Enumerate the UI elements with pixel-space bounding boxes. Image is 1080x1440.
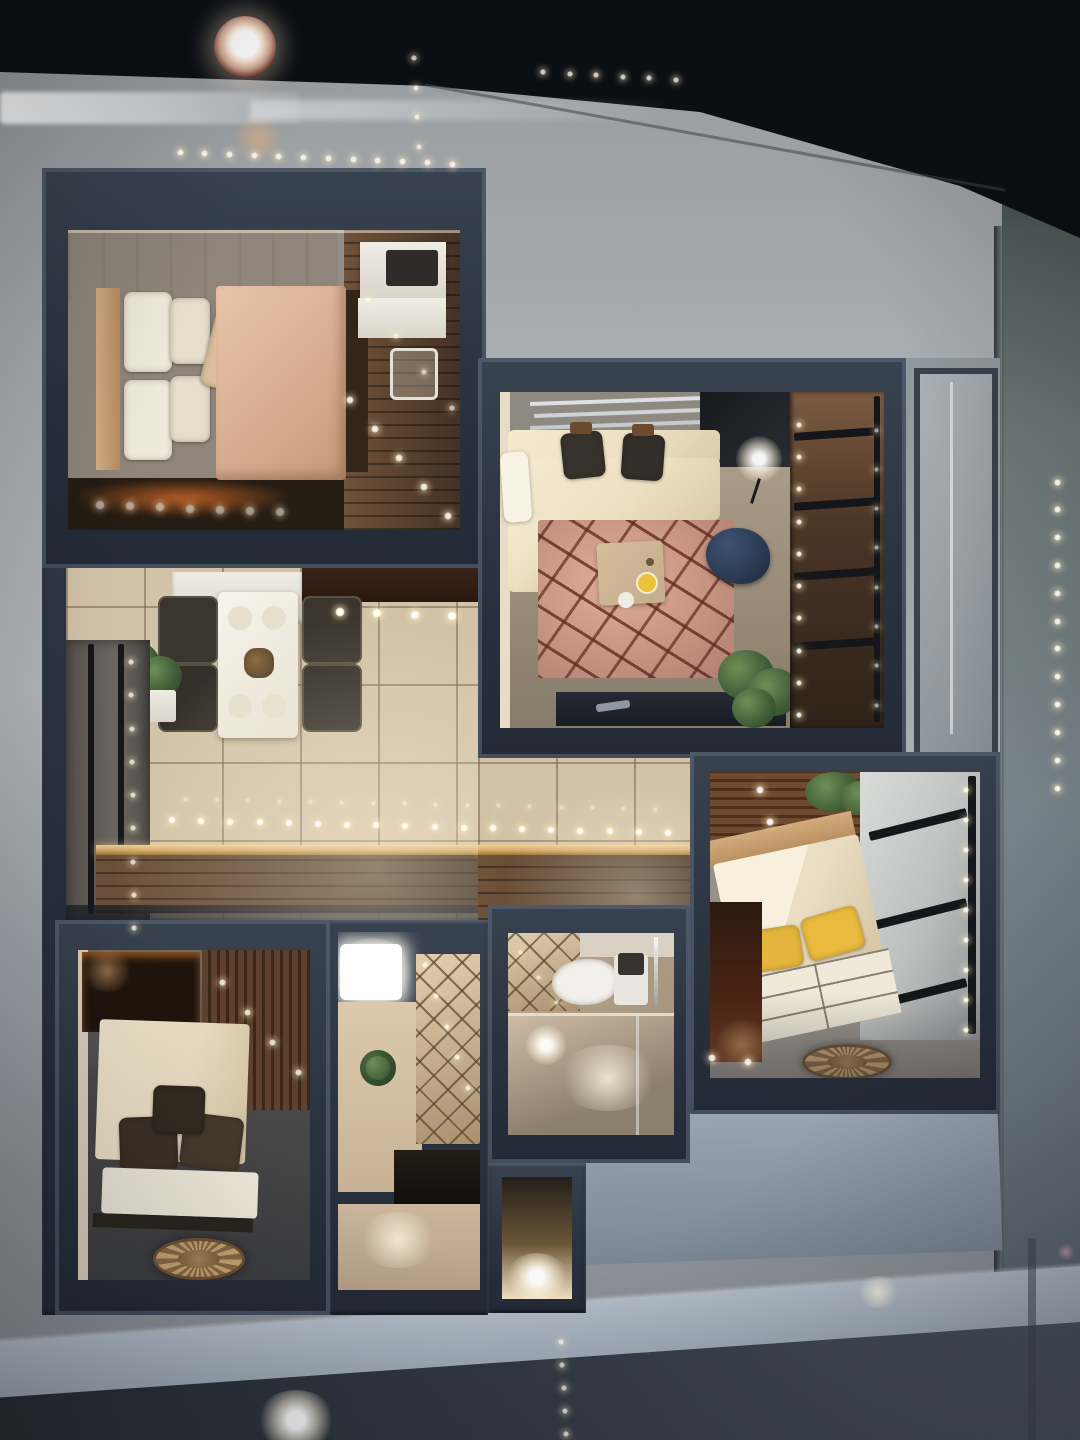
bathroom-interior <box>508 933 674 1135</box>
glass-partition-edge <box>636 1016 639 1135</box>
bed-foot-sheet <box>101 1167 259 1218</box>
plate <box>228 694 252 718</box>
corridor-threshold-strip <box>478 845 690 855</box>
chrome-pole <box>654 937 658 1011</box>
dining-kitchen-floor <box>66 568 478 920</box>
hall-console <box>394 1150 480 1204</box>
table-cup <box>646 558 654 566</box>
shower-room-box <box>488 1163 586 1313</box>
dining-chair <box>158 664 218 732</box>
bath-glossy-floor <box>508 1016 674 1135</box>
sofa-pillow-tab <box>570 422 592 434</box>
kitchen-counter-dark <box>302 568 478 602</box>
bed-pillow-white <box>170 376 210 442</box>
sofa-pillow-dark <box>560 430 607 480</box>
balcony-rail-bar <box>794 567 878 581</box>
bedroom-bottom-left-box <box>55 920 330 1315</box>
entry-wood-floor <box>96 855 478 913</box>
dining-bottom-shadow <box>66 905 478 920</box>
hall-floor <box>338 1204 480 1290</box>
ceiling-light-edge <box>68 230 460 233</box>
dining-chair <box>302 664 362 732</box>
dining-table <box>218 592 298 738</box>
bed-pillow-white <box>124 292 172 372</box>
balcony-rail-bar <box>794 637 878 651</box>
bed-duvet-peach <box>216 286 346 480</box>
balcony-rail-bar <box>794 427 878 441</box>
dining-chair <box>158 596 218 664</box>
bedroom-top-left-interior <box>68 230 460 530</box>
shower-floor-glow <box>506 1253 568 1299</box>
plate <box>228 606 252 630</box>
floor-shading <box>710 992 980 1078</box>
bedroom-bottom-left-interior <box>78 950 310 1280</box>
plate-white <box>618 592 634 608</box>
balcony-rail <box>118 644 124 914</box>
dining-plant <box>112 642 160 686</box>
sofa-pillow-dark <box>620 433 665 482</box>
living-balcony <box>790 392 884 728</box>
shower-room-interior <box>502 1177 572 1299</box>
plate-yellow <box>636 572 658 594</box>
living-room-interior <box>500 392 884 728</box>
bedroom-top-left-box <box>42 168 486 568</box>
toilet-tank-lid-dark <box>618 953 644 975</box>
wall-wreath <box>360 1050 396 1086</box>
bed-headboard <box>96 288 120 470</box>
table-centerpiece <box>244 648 274 678</box>
bed-group <box>92 1019 272 1245</box>
wall-lamp <box>340 944 402 1000</box>
bedroom-right-interior <box>710 772 980 1078</box>
glass-panel-frame <box>914 368 998 760</box>
sofa-seat <box>508 458 720 520</box>
sofa-throw-blanket <box>500 451 532 523</box>
dining-plant-leaf <box>138 656 182 696</box>
bathroom-box <box>488 905 690 1163</box>
round-rug <box>153 1238 245 1280</box>
under-bed-light-strip <box>78 480 288 516</box>
plate <box>262 694 286 718</box>
ceiling-downlight <box>214 16 276 78</box>
living-room-box <box>478 358 906 758</box>
shelf-right-seam <box>1028 1238 1036 1440</box>
planter-box <box>118 690 176 722</box>
living-plant-leaf <box>732 688 776 728</box>
plate <box>262 606 286 630</box>
balcony-rail-post <box>874 396 880 722</box>
lamp-stand <box>750 478 761 504</box>
scene-photo <box>0 0 1080 1440</box>
lit-threshold-strip <box>96 845 478 855</box>
pillow-brown-center <box>152 1085 206 1135</box>
mirror-closet <box>416 954 480 1144</box>
navy-lounge-chair <box>706 528 770 584</box>
bedroom-right-box <box>690 752 1000 1114</box>
dining-chair <box>302 596 362 664</box>
bed-pillow-white <box>170 298 210 364</box>
desk-monitor <box>386 250 438 286</box>
sofa-pillow-tab <box>632 424 654 436</box>
desk-chair <box>390 348 438 400</box>
kitchen-cabinet <box>172 572 302 624</box>
corridor-floor <box>478 758 690 920</box>
model-right-glass-panel <box>906 358 1000 760</box>
balcony-rail-bar <box>794 497 878 511</box>
bed-pillow-white <box>124 380 172 460</box>
balcony-rail <box>88 644 94 914</box>
glass-highlight-line <box>950 382 953 734</box>
hallway-interior <box>338 932 480 1302</box>
hallway-box <box>330 920 488 1315</box>
desk-top <box>358 298 446 338</box>
left-balcony <box>66 640 150 920</box>
